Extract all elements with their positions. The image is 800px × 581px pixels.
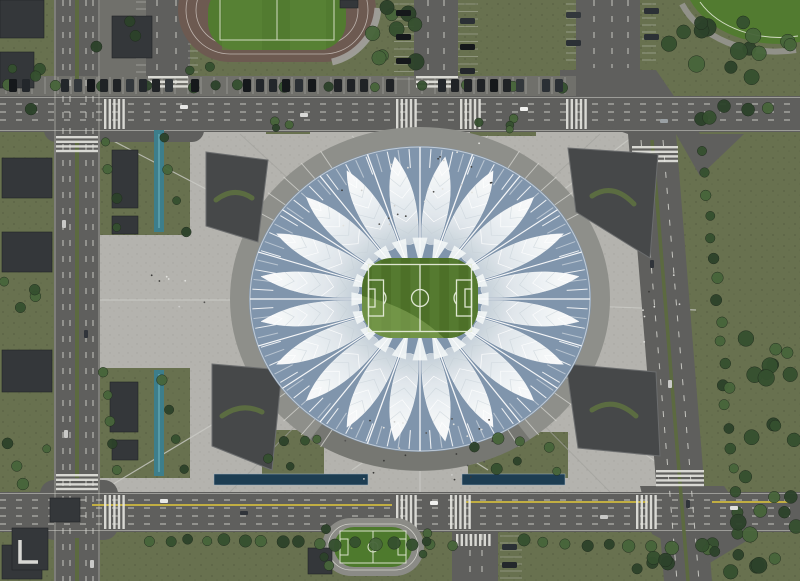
crosswalk-bar <box>410 99 412 129</box>
football-pitch <box>362 258 478 338</box>
tree <box>43 445 51 453</box>
infield-stripe <box>290 0 326 50</box>
person-dot <box>673 274 675 276</box>
parked-car <box>191 79 199 92</box>
tree <box>506 126 513 133</box>
tree <box>758 370 775 387</box>
tree <box>408 18 422 32</box>
tree <box>717 317 728 328</box>
crosswalk-bar <box>645 495 647 529</box>
person-dot <box>643 341 645 343</box>
tree <box>180 465 189 474</box>
tree <box>423 529 432 538</box>
crosswalk-bar <box>479 534 481 546</box>
tree <box>163 165 173 175</box>
tree <box>218 534 230 546</box>
tree <box>239 535 251 547</box>
tree <box>770 420 781 431</box>
tree <box>112 193 122 203</box>
person-dot <box>361 190 363 192</box>
crosswalk-bar <box>56 479 98 481</box>
person-dot <box>151 274 153 276</box>
building <box>2 232 52 272</box>
tree <box>2 438 13 449</box>
parked-car <box>347 79 355 92</box>
tree <box>232 80 242 90</box>
person-dot <box>184 280 186 282</box>
person-dot <box>644 316 646 318</box>
reflecting-pool <box>214 474 368 485</box>
crosswalk-bar <box>56 488 98 490</box>
person-dot <box>478 428 480 430</box>
parked-car <box>460 44 475 50</box>
person-dot <box>471 166 473 168</box>
car <box>686 500 690 508</box>
crosswalk-bar <box>470 534 472 546</box>
parked-car <box>490 79 498 92</box>
tree <box>164 405 173 414</box>
tree <box>125 16 136 27</box>
tree <box>286 462 294 470</box>
parked-car <box>269 79 277 92</box>
crosswalk-bar <box>575 99 577 129</box>
person-dot <box>343 225 345 227</box>
parked-car <box>502 544 517 550</box>
parked-car <box>22 79 30 92</box>
tree <box>91 41 102 52</box>
person-dot <box>363 478 365 480</box>
crosswalk-bar <box>56 150 98 152</box>
crosswalk-bar <box>580 99 582 129</box>
parked-car <box>282 79 290 92</box>
tree <box>729 464 738 473</box>
crosswalk-bar <box>148 76 188 78</box>
person-dot <box>344 440 346 442</box>
crosswalk-bar <box>56 145 98 147</box>
tree <box>744 69 759 84</box>
building <box>340 0 358 8</box>
person-dot <box>394 421 396 423</box>
person-dot <box>442 188 444 190</box>
person-dot <box>405 215 407 217</box>
car <box>62 220 66 228</box>
tree <box>279 436 289 446</box>
person-dot <box>491 440 493 442</box>
tree <box>719 400 729 410</box>
tree <box>285 121 293 129</box>
tree <box>742 103 755 116</box>
person-dot <box>428 188 430 190</box>
crosswalk-bar <box>566 99 568 129</box>
tree <box>782 347 794 359</box>
person-dot <box>351 427 353 429</box>
parked-car <box>396 10 411 16</box>
crosswalk-bar <box>469 99 471 129</box>
person-dot <box>451 474 453 476</box>
tree <box>113 223 121 231</box>
person-dot <box>341 189 343 191</box>
car <box>660 119 668 123</box>
person-dot <box>488 419 490 421</box>
tree <box>313 435 321 443</box>
tree <box>703 111 717 125</box>
parked-car <box>503 79 511 92</box>
crosswalk-bar <box>56 483 98 485</box>
person-dot <box>416 219 418 221</box>
tree <box>710 294 721 305</box>
person-dot <box>397 214 399 216</box>
parked-car <box>644 34 659 40</box>
person-dot <box>425 432 427 434</box>
tree <box>751 557 767 573</box>
tree <box>715 336 725 346</box>
tree <box>448 541 458 551</box>
person-dot <box>424 201 426 203</box>
parked-car <box>386 79 394 92</box>
tree <box>784 490 797 503</box>
parked-car <box>334 79 342 92</box>
tree <box>730 486 741 497</box>
building <box>2 350 52 392</box>
person-dot <box>466 435 468 437</box>
person-dot <box>394 205 396 207</box>
person-dot <box>443 160 445 162</box>
crosswalk-bar <box>113 495 115 529</box>
person-dot <box>402 422 404 424</box>
tree <box>380 0 394 14</box>
crosswalk-bar <box>474 534 476 546</box>
parked-car <box>566 12 581 18</box>
tree <box>737 16 750 29</box>
building <box>2 158 52 198</box>
tree <box>738 331 754 347</box>
parked-car <box>438 79 446 92</box>
parked-car <box>396 58 411 64</box>
crosswalk-bar <box>484 534 486 546</box>
parked-car <box>555 79 563 92</box>
tree <box>677 25 691 39</box>
tree <box>17 478 29 490</box>
person-dot <box>648 291 650 293</box>
tree <box>700 190 711 201</box>
tree <box>105 416 115 426</box>
crosswalk-bar <box>460 99 462 129</box>
parked-car <box>516 79 524 92</box>
tree <box>712 272 724 284</box>
crosswalk-bar <box>464 495 466 529</box>
parked-car <box>477 79 485 92</box>
tree <box>720 358 731 369</box>
crosswalk-bar <box>113 99 115 129</box>
parked-car <box>256 79 264 92</box>
person-dot <box>470 440 472 442</box>
crosswalk-bar <box>56 136 98 138</box>
tree <box>417 81 427 91</box>
tree <box>538 537 548 547</box>
tree <box>739 470 752 483</box>
tree <box>185 66 194 75</box>
tree <box>769 553 781 565</box>
crosswalk-bar <box>104 495 106 529</box>
tree <box>263 454 272 463</box>
parked-car <box>360 79 368 92</box>
crosswalk-bar <box>654 495 656 529</box>
car <box>180 105 188 109</box>
person-dot <box>407 167 409 169</box>
tree <box>754 504 767 517</box>
person-dot <box>433 191 435 193</box>
tree <box>659 553 673 567</box>
tree <box>752 46 767 61</box>
crosswalk-bar <box>650 495 652 529</box>
parked-car <box>460 18 475 24</box>
tree <box>181 227 191 237</box>
crosswalk-bar <box>122 495 124 529</box>
tree <box>171 435 180 444</box>
stadium-aerial-render <box>0 0 800 581</box>
person-dot <box>453 423 455 425</box>
tree <box>144 536 154 546</box>
tree <box>272 124 279 131</box>
parked-car <box>464 79 472 92</box>
crosswalk-bar <box>465 534 467 546</box>
screenshot-root <box>0 0 800 581</box>
tree <box>491 463 502 474</box>
tree <box>292 536 304 548</box>
person-dot <box>490 182 492 184</box>
tree <box>724 382 735 393</box>
parked-car <box>566 40 581 46</box>
parked-car <box>502 562 517 568</box>
crosswalk-bar <box>656 484 704 486</box>
car <box>300 113 308 117</box>
tree <box>406 539 418 551</box>
person-dot <box>369 420 371 422</box>
tree <box>11 461 22 472</box>
tree <box>422 537 431 546</box>
tree <box>314 538 325 549</box>
crosswalk-bar <box>118 99 120 129</box>
tree <box>98 367 108 377</box>
tree <box>205 62 214 71</box>
tree <box>730 42 747 59</box>
tree <box>787 433 800 447</box>
tree <box>324 561 334 571</box>
car <box>430 501 438 505</box>
tree <box>103 164 113 174</box>
crosswalk-bar <box>109 99 111 129</box>
tree <box>725 61 738 74</box>
crosswalk-bar <box>122 99 124 129</box>
person-dot <box>470 476 472 478</box>
tree <box>321 524 330 533</box>
person-dot <box>383 427 385 429</box>
person-dot <box>451 418 453 420</box>
tree <box>320 553 329 562</box>
tree <box>647 551 660 564</box>
building <box>50 498 80 522</box>
building <box>0 0 44 38</box>
tree <box>742 527 758 543</box>
person-dot <box>478 142 480 144</box>
tree <box>724 423 734 433</box>
crosswalk-bar <box>104 99 106 129</box>
person-dot <box>390 164 392 166</box>
parked-car <box>308 79 316 92</box>
tree <box>160 133 169 142</box>
tree <box>211 81 221 91</box>
tree <box>697 146 706 155</box>
person-dot <box>679 303 681 305</box>
tree <box>324 82 334 92</box>
parked-car <box>113 79 121 92</box>
crosswalk-bar <box>405 99 407 129</box>
car <box>600 515 608 519</box>
crosswalk-bar <box>636 495 638 529</box>
tree <box>744 430 759 445</box>
person-dot <box>467 465 469 467</box>
crosswalk-bar <box>468 495 470 529</box>
tree <box>710 546 720 556</box>
tree <box>706 211 715 220</box>
person-dot <box>439 156 441 158</box>
tree <box>688 56 705 73</box>
parked-car <box>451 79 459 92</box>
person-dot <box>471 192 473 194</box>
tree <box>560 539 570 549</box>
tree <box>622 540 635 553</box>
parked-car <box>295 79 303 92</box>
person-dot <box>166 276 168 278</box>
tree <box>369 538 382 551</box>
tree <box>770 343 782 355</box>
parked-car <box>152 79 160 92</box>
person-dot <box>178 306 180 308</box>
person-dot <box>405 454 407 456</box>
upper-right-road <box>576 0 640 70</box>
tree <box>0 277 9 286</box>
crosswalk-bar <box>414 495 416 529</box>
parked-car <box>100 79 108 92</box>
car <box>730 506 738 510</box>
tree <box>112 465 121 474</box>
crosswalk-bar <box>465 99 467 129</box>
tree <box>130 30 141 41</box>
tree <box>15 302 25 312</box>
car <box>668 380 672 388</box>
person-dot <box>389 223 391 225</box>
tree <box>718 100 731 113</box>
tree <box>604 539 614 549</box>
tree <box>277 536 289 548</box>
building <box>110 382 138 432</box>
tree <box>8 64 17 73</box>
tree <box>544 442 554 452</box>
tree <box>661 36 677 52</box>
crosswalk-bar <box>56 141 98 143</box>
tree <box>513 457 521 465</box>
tree <box>474 118 483 127</box>
parked-car <box>61 79 69 92</box>
car <box>160 499 168 503</box>
tree <box>30 71 41 82</box>
crosswalk-bar <box>118 495 120 529</box>
tree <box>329 539 342 552</box>
crosswalk-bar <box>450 495 452 529</box>
tree <box>365 26 380 41</box>
crosswalk-bar <box>56 474 98 476</box>
tree <box>101 138 109 146</box>
tree <box>646 541 657 552</box>
crosswalk-bar <box>455 495 457 529</box>
crosswalk-bar <box>641 495 643 529</box>
tree <box>255 535 267 547</box>
tree <box>25 103 37 115</box>
crosswalk-bar <box>584 99 586 129</box>
tree <box>469 442 479 452</box>
tree <box>515 437 524 446</box>
crosswalk-bar <box>571 99 573 129</box>
parked-car <box>87 79 95 92</box>
crosswalk-bar <box>656 475 704 477</box>
crosswalk-bar <box>461 534 463 546</box>
person-dot <box>653 306 655 308</box>
tree <box>708 253 719 264</box>
person-dot <box>481 429 483 431</box>
parked-car <box>460 68 475 74</box>
crosswalk-bar <box>459 495 461 529</box>
tree <box>173 197 181 205</box>
person-dot <box>483 461 485 463</box>
tree <box>745 28 761 44</box>
tree <box>695 538 709 552</box>
reflecting-pool <box>462 474 565 485</box>
person-dot <box>398 447 400 449</box>
tree <box>419 550 427 558</box>
tree <box>733 549 744 560</box>
parked-car <box>644 8 659 14</box>
tree <box>157 375 168 386</box>
tree <box>723 565 738 580</box>
car <box>650 260 654 268</box>
tree <box>370 83 379 92</box>
tree <box>762 102 773 113</box>
crosswalk-bar <box>401 99 403 129</box>
crosswalk-bar <box>109 495 111 529</box>
tree <box>784 39 797 52</box>
tree <box>166 536 176 546</box>
tree <box>694 16 707 29</box>
parked-car <box>126 79 134 92</box>
person-dot <box>461 184 463 186</box>
tree <box>29 284 40 295</box>
crosswalk-bar <box>632 146 678 148</box>
person-dot <box>456 453 458 455</box>
tree <box>103 391 112 400</box>
person-dot <box>204 301 206 303</box>
parked-car <box>139 79 147 92</box>
person-dot <box>456 151 458 153</box>
parked-car <box>542 79 550 92</box>
parked-car <box>165 79 173 92</box>
tree <box>665 541 679 555</box>
car <box>520 107 528 111</box>
crosswalk-bar <box>414 99 416 129</box>
parked-car <box>396 34 411 40</box>
sunken-garden <box>206 152 268 242</box>
tree <box>388 537 401 550</box>
tree <box>300 436 309 445</box>
